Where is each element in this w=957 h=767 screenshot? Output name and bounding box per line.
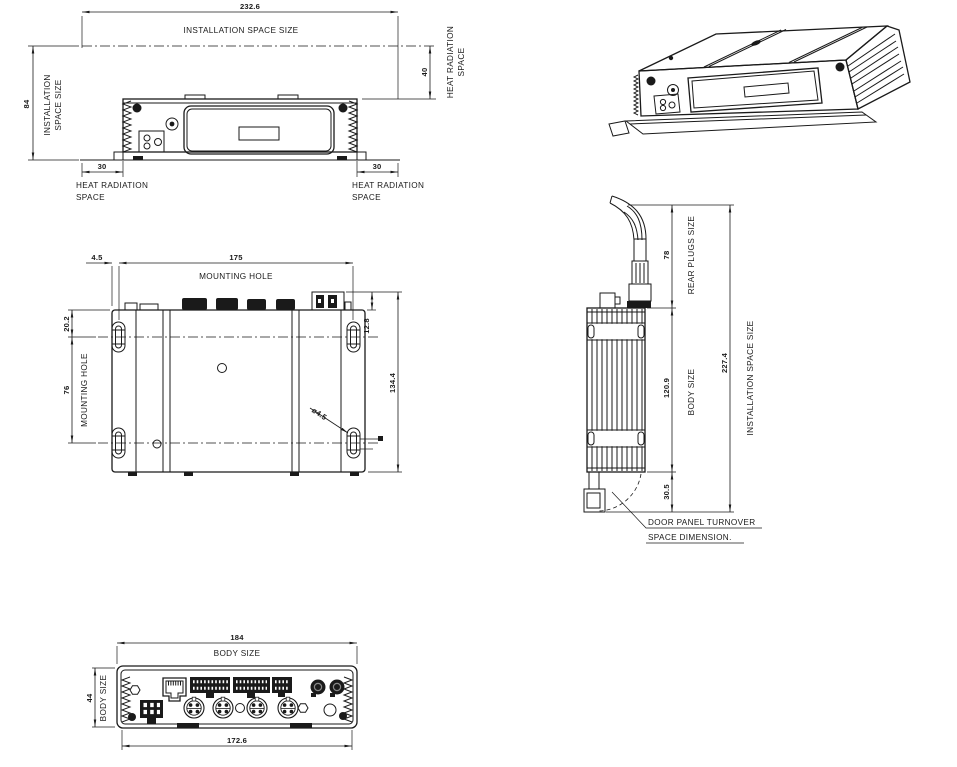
dim-heat-left: 30	[98, 162, 107, 171]
dim-rear-plugs: 78	[662, 251, 671, 260]
front-label	[239, 127, 279, 140]
antenna-connectors	[311, 680, 345, 698]
door-note-1: DOOR PANEL TURNOVER	[648, 518, 756, 527]
dim-hole-diameter: ø4.5	[310, 406, 329, 423]
isometric-heatsink-fins	[848, 34, 904, 103]
din-connector	[213, 697, 233, 718]
corner-screw	[339, 104, 348, 113]
front-width-note: INSTALLATION SPACE SIZE	[184, 26, 299, 35]
small-port	[236, 704, 245, 713]
heat-top-note-2: SPACE	[457, 47, 466, 76]
heat-left-note-1: HEAT RADIATION	[76, 181, 148, 190]
hex-nut	[298, 704, 308, 713]
dim-rear-mount-span: 172.6	[227, 736, 247, 745]
round-port	[324, 704, 336, 716]
front-label	[744, 83, 789, 97]
dim-plug-protrusion: 12.8	[362, 318, 371, 334]
corner-screw	[133, 104, 142, 113]
din-connector	[184, 697, 204, 718]
dim-total-depth: 134.4	[388, 372, 397, 393]
door-note-2: SPACE DIMENSION.	[648, 533, 732, 542]
dim-heat-right: 30	[373, 162, 382, 171]
top-hole-span-note: MOUNTING HOLE	[199, 272, 273, 281]
heatsink-fins-left	[123, 101, 131, 152]
dim-door-space: 30.5	[662, 484, 671, 500]
corner-screw	[647, 77, 656, 86]
heat-left-note-2: SPACE	[76, 193, 105, 202]
power-connector	[140, 700, 163, 724]
dim-top-edge-offset: 4.5	[91, 253, 103, 262]
side-view-device	[584, 196, 651, 512]
dim-side-body: 120.9	[662, 378, 671, 398]
din-connector	[278, 697, 298, 718]
front-connector-block	[139, 131, 164, 152]
rear-height-note: BODY SIZE	[99, 674, 108, 721]
heat-right-note-1: HEAT RADIATION	[352, 181, 424, 190]
rear-plugs-note: REAR PLUGS SIZE	[687, 216, 696, 295]
rear-width-note: BODY SIZE	[214, 649, 261, 658]
installation-drawing: 232.6 INSTALLATION SPACE SIZE 84 INSTALL…	[0, 0, 957, 767]
drawing-svg: 232.6 INSTALLATION SPACE SIZE 84 INSTALL…	[0, 0, 957, 767]
front-view-dimensions: 232.6 INSTALLATION SPACE SIZE 84 INSTALL…	[22, 2, 466, 202]
dim-side-total: 227.4	[720, 352, 729, 373]
isometric-left-fins	[634, 75, 638, 115]
dim-front-height: 84	[22, 99, 31, 108]
side-body-note: BODY SIZE	[687, 368, 696, 415]
dim-front-width: 232.6	[240, 2, 260, 11]
side-view: 78 REAR PLUGS SIZE 120.9 BODY SIZE 30.5 …	[584, 196, 762, 543]
pin-connectors	[190, 677, 292, 698]
top-view: 4.5 175 MOUNTING HOLE 20.2 76 MOUNTING H…	[62, 253, 402, 476]
side-total-note: INSTALLATION SPACE SIZE	[746, 320, 755, 435]
small-hole	[153, 440, 161, 448]
dim-heat-top: 40	[420, 68, 429, 77]
hole-vspan-note: MOUNTING HOLE	[80, 353, 89, 427]
front-connector-block	[654, 94, 680, 114]
rear-connector	[276, 299, 295, 310]
corner-screw	[836, 63, 845, 72]
panel-screw	[128, 713, 136, 721]
side-view-dimensions: 78 REAR PLUGS SIZE 120.9 BODY SIZE 30.5 …	[606, 205, 762, 543]
dim-hole-top-offset: 20.2	[62, 316, 71, 332]
top-view-device	[98, 292, 380, 476]
dim-rear-height: 44	[85, 693, 94, 702]
rear-view-device	[117, 666, 357, 728]
rear-connector	[247, 299, 266, 310]
ethernet-port	[163, 678, 186, 701]
rear-connector	[182, 298, 207, 310]
panel-screw	[339, 712, 347, 720]
front-view: 232.6 INSTALLATION SPACE SIZE 84 INSTALL…	[22, 2, 466, 202]
heat-top-note-1: HEAT RADIATION	[446, 26, 455, 98]
front-view-device	[80, 95, 400, 160]
dim-top-hole-span: 175	[229, 253, 243, 262]
heat-right-note-2: SPACE	[352, 193, 381, 202]
front-height-note-1: INSTALLATION	[43, 74, 52, 135]
dim-hole-vspan: 76	[62, 386, 71, 395]
din-connector	[247, 697, 267, 718]
door-panel-swing	[584, 472, 641, 512]
rear-connector	[216, 298, 238, 310]
front-door-panel	[184, 106, 334, 154]
rear-view: 184 BODY SIZE 44 BODY SIZE 172.6	[85, 633, 357, 750]
heatsink-fins-right	[349, 101, 357, 152]
front-height-note-2: SPACE SIZE	[54, 79, 63, 130]
isometric-view	[609, 26, 910, 136]
hex-nut	[130, 686, 140, 695]
center-hole	[218, 364, 227, 373]
front-door-panel	[688, 68, 822, 112]
rear-plug-and-cable	[610, 196, 651, 301]
dim-rear-width: 184	[230, 633, 244, 642]
